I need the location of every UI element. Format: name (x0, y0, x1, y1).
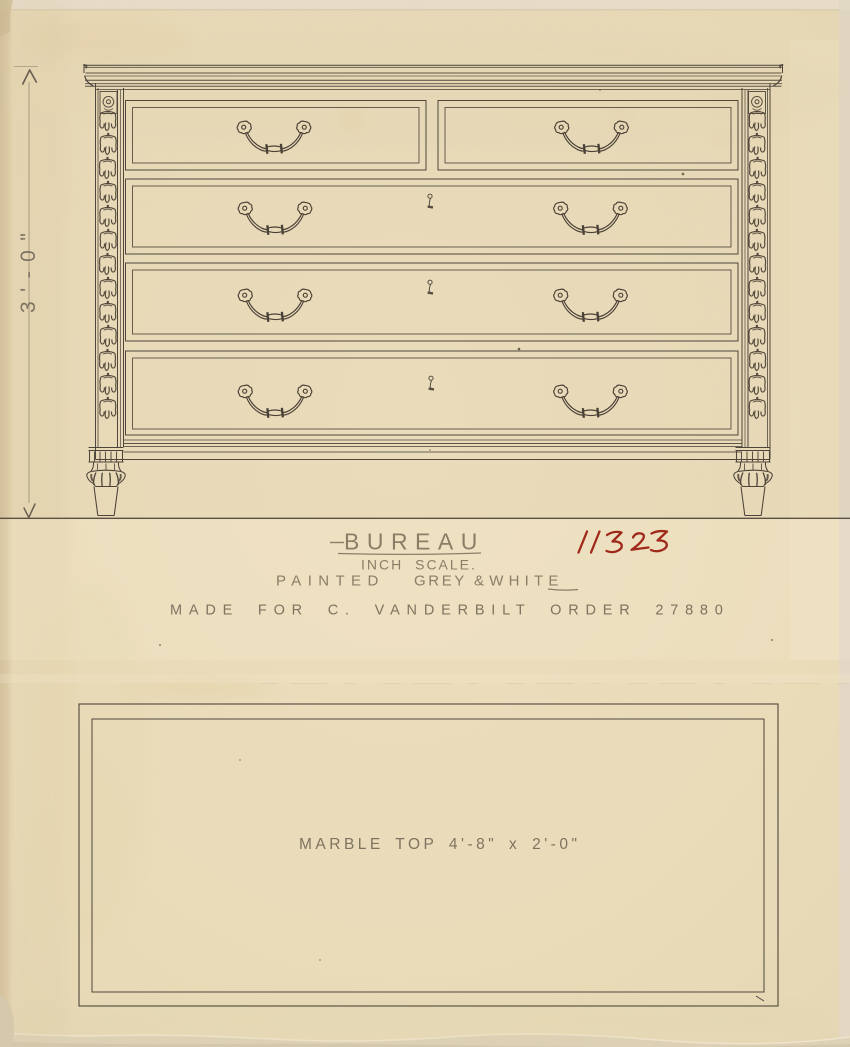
svg-text:MARBLE TOP 4'-8" x 2'-0": MARBLE TOP 4'-8" x 2'-0" (299, 836, 580, 853)
svg-text:&WHITE: &WHITE (474, 573, 564, 590)
svg-text:MADE FOR C. VANDERBILT ORDER: MADE FOR C. VANDERBILT ORDER 27880 (170, 603, 730, 619)
svg-text:3'-0": 3'-0" (17, 224, 40, 313)
svg-text:PAINTED: PAINTED (276, 573, 385, 590)
svg-text:BUREAU: BUREAU (344, 529, 485, 555)
svg-text:GREY: GREY (414, 573, 467, 590)
svg-text:INCH SCALE.: INCH SCALE. (361, 557, 477, 573)
